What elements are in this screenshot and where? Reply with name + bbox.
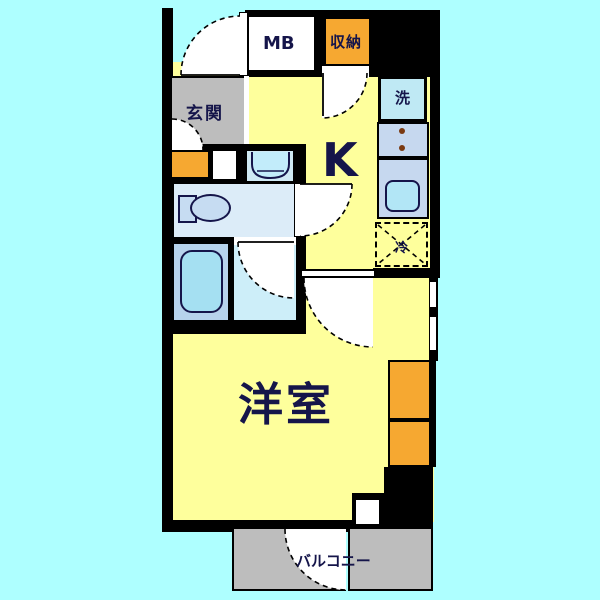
label-balcony: バルコニー bbox=[296, 550, 371, 571]
label-kitchen: K bbox=[322, 133, 358, 187]
label-fridge: 冷 bbox=[395, 237, 408, 256]
fixtures-and-door-arcs-overlay bbox=[0, 0, 600, 600]
stove-burner-dot-2 bbox=[399, 145, 405, 151]
washbasin-bowl bbox=[252, 152, 289, 178]
label-washer: 洗 bbox=[395, 87, 410, 108]
entrance-door-arc bbox=[181, 16, 240, 75]
label-genkan: 玄関 bbox=[186, 99, 224, 124]
stove-burner-dot-1 bbox=[399, 128, 405, 134]
label-western-room: 洋室 bbox=[238, 368, 334, 433]
label-meter-box: MB bbox=[263, 33, 295, 54]
floor-plan: 玄関 MB 収納 洗 K 冷 洋室 バルコニー bbox=[0, 0, 600, 600]
label-storage: 収納 bbox=[330, 31, 362, 52]
room-door-arc bbox=[304, 278, 373, 347]
